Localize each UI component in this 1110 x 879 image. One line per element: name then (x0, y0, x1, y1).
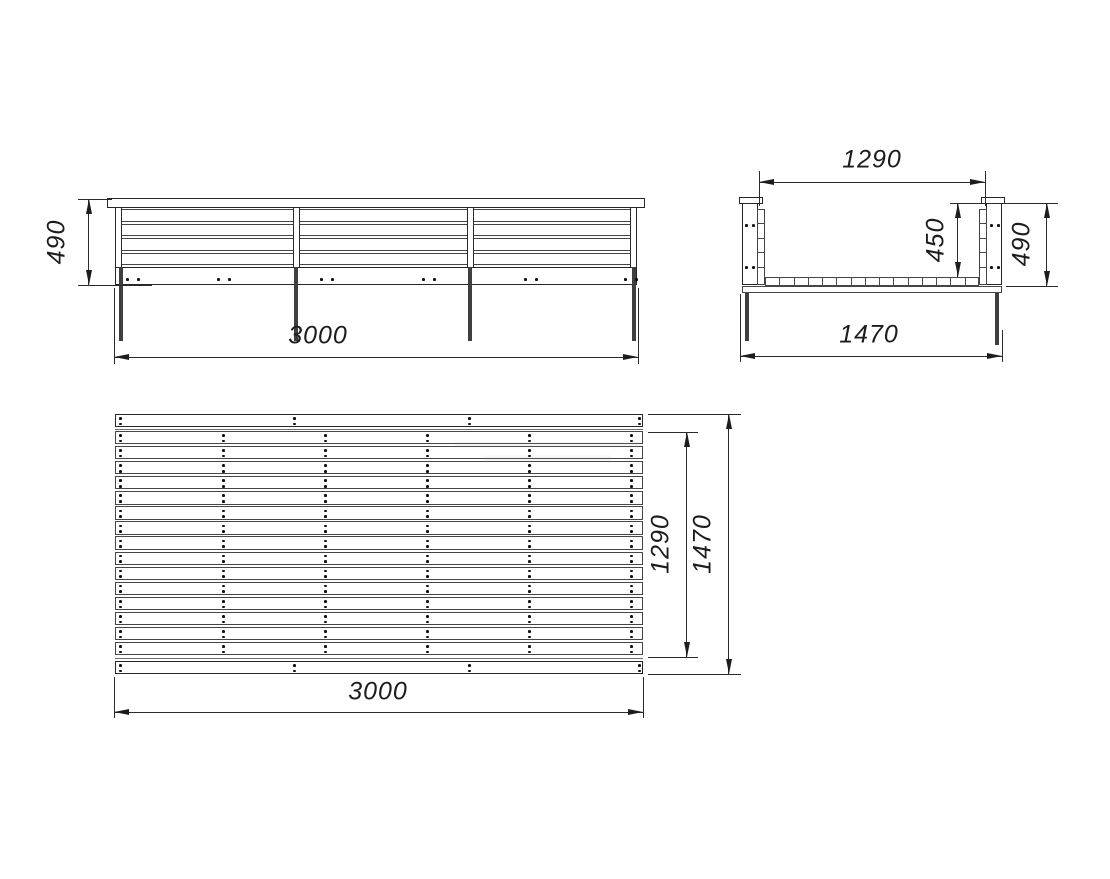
arrow-down-icon (86, 270, 92, 285)
screw-dot (752, 266, 755, 269)
screw-dot (293, 670, 296, 673)
extension-line (78, 285, 152, 286)
dimension-line (114, 712, 643, 713)
floor-slat-tick (908, 278, 909, 285)
screw-dot (630, 525, 633, 528)
front-post (115, 208, 122, 267)
screw-dot (426, 600, 429, 603)
screw-dot (528, 600, 531, 603)
screw-dot (426, 590, 429, 593)
plan-floor-slat (115, 627, 643, 640)
screw-dot (324, 621, 327, 624)
screw-dot (293, 664, 296, 667)
side-right-slat-ends (979, 209, 987, 285)
arrow-down-icon (1044, 271, 1050, 286)
screw-dot (426, 555, 429, 558)
screw-dot (222, 590, 225, 593)
extension-line (648, 657, 698, 658)
screw-dot (426, 525, 429, 528)
extension-line (740, 294, 741, 362)
front-leg (119, 267, 123, 341)
screw-dot (222, 434, 225, 437)
screw-dot (222, 560, 225, 563)
screw-dot (324, 651, 327, 654)
plan-floor-slat (115, 642, 643, 655)
screw-dot (222, 636, 225, 639)
side-floor-platform (765, 277, 979, 286)
screw-dot (119, 606, 122, 609)
screw-dot (222, 606, 225, 609)
dim-value: 1290 (842, 146, 902, 175)
screw-dot (630, 470, 633, 473)
screw-dot (426, 575, 429, 578)
slat-end-tick (758, 238, 765, 239)
plan-bottom-rail-edge (115, 658, 643, 659)
screw-dot (222, 500, 225, 503)
screw-dot (119, 630, 122, 633)
screw-dot (222, 600, 225, 603)
screw-dot (528, 485, 531, 488)
screw-dot (222, 575, 225, 578)
slat-end-tick (980, 223, 987, 224)
screw-dot (222, 464, 225, 467)
screw-dot (119, 600, 122, 603)
screw-dot (426, 560, 429, 563)
screw-dot (630, 600, 633, 603)
screw-dot (638, 423, 641, 426)
arrow-left-icon (740, 353, 755, 359)
front-top-cap (107, 198, 645, 208)
screw-dot (426, 479, 429, 482)
screw-dot (324, 540, 327, 543)
screw-dot (119, 670, 122, 673)
screw-dot (119, 651, 122, 654)
screw-dot (222, 621, 225, 624)
arrow-right-icon (970, 179, 985, 185)
extension-line (648, 432, 698, 433)
screw-dot (324, 600, 327, 603)
screw-dot (119, 470, 122, 473)
dim-value: 3000 (288, 322, 348, 351)
screw-dot (324, 530, 327, 533)
screw-dot (119, 417, 122, 420)
screw-dot (528, 510, 531, 513)
screw-dot (528, 621, 531, 624)
screw-dot (324, 525, 327, 528)
screw-dot (535, 278, 538, 281)
screw-dot (119, 434, 122, 437)
screw-dot (990, 224, 993, 227)
screw-dot (119, 525, 122, 528)
screw-dot (468, 423, 471, 426)
screw-dot (228, 278, 231, 281)
plan-bottom-rail (115, 661, 643, 674)
screw-dot (324, 515, 327, 518)
screw-dot (426, 515, 429, 518)
screw-dot (990, 266, 993, 269)
screw-dot (222, 470, 225, 473)
screw-dot (630, 590, 633, 593)
screw-dot (624, 278, 627, 281)
floor-slat-tick (779, 278, 780, 285)
floor-slat-tick (865, 278, 866, 285)
screw-dot (528, 615, 531, 618)
screw-dot (119, 590, 122, 593)
floor-slat-tick (893, 278, 894, 285)
extension-line (1002, 330, 1003, 362)
screw-dot (524, 278, 527, 281)
front-post (630, 208, 637, 267)
screw-dot (222, 485, 225, 488)
extension-line (114, 288, 115, 364)
screw-dot (293, 417, 296, 420)
screw-dot (638, 670, 641, 673)
screw-dot (528, 470, 531, 473)
plan-floor-slat (115, 446, 643, 459)
screw-dot (119, 645, 122, 648)
screw-dot (997, 266, 1000, 269)
screw-dot (528, 525, 531, 528)
extension-line (643, 677, 644, 718)
screw-dot (528, 560, 531, 563)
screw-dot (222, 540, 225, 543)
screw-dot (426, 606, 429, 609)
floor-slat-tick (922, 278, 923, 285)
screw-dot (468, 670, 471, 673)
screw-dot (324, 636, 327, 639)
screw-dot (630, 555, 633, 558)
arrow-up-icon (955, 203, 961, 218)
plan-floor-slat (115, 582, 643, 595)
plan-floor-slat (115, 521, 643, 534)
screw-dot (324, 590, 327, 593)
screw-dot (528, 500, 531, 503)
screw-dot (426, 651, 429, 654)
screw-dot (324, 575, 327, 578)
screw-dot (752, 224, 755, 227)
screw-dot (426, 540, 429, 543)
screw-dot (630, 651, 633, 654)
arrow-right-icon (628, 709, 643, 715)
screw-dot (528, 630, 531, 633)
screw-dot (320, 278, 323, 281)
extension-line (638, 288, 639, 364)
extension-line (950, 203, 1058, 204)
screw-dot (630, 510, 633, 513)
screw-dot (433, 278, 436, 281)
front-wall-slat (115, 253, 637, 266)
screw-dot (324, 449, 327, 452)
screw-dot (630, 479, 633, 482)
plan-floor-slat (115, 612, 643, 625)
front-post (467, 208, 474, 267)
plan-top-rail-edge (115, 429, 643, 430)
arrow-down-icon (684, 642, 690, 657)
arrow-up-icon (1044, 203, 1050, 218)
floor-slat-tick (936, 278, 937, 285)
screw-dot (630, 621, 633, 624)
screw-dot (468, 664, 471, 667)
screw-dot (222, 530, 225, 533)
screw-dot (222, 645, 225, 648)
screw-dot (119, 555, 122, 558)
screw-dot (324, 500, 327, 503)
plan-floor-slat (115, 597, 643, 610)
side-left-post (742, 203, 758, 285)
plan-floor-slat (115, 536, 643, 549)
screw-dot (324, 560, 327, 563)
screw-dot (324, 645, 327, 648)
slat-end-tick (758, 223, 765, 224)
side-right-leg (995, 293, 999, 345)
screw-dot (528, 575, 531, 578)
screw-dot (528, 479, 531, 482)
screw-dot (426, 645, 429, 648)
screw-dot (222, 555, 225, 558)
screw-dot (426, 470, 429, 473)
screw-dot (119, 464, 122, 467)
screw-dot (324, 606, 327, 609)
floor-slat-tick (794, 278, 795, 285)
screw-dot (119, 510, 122, 513)
screw-dot (119, 560, 122, 563)
screw-dot (331, 278, 334, 281)
screw-dot (324, 479, 327, 482)
floor-slat-tick (879, 278, 880, 285)
screw-dot (630, 575, 633, 578)
screw-dot (638, 417, 641, 420)
screw-dot (630, 434, 633, 437)
front-post (293, 208, 300, 267)
screw-dot (426, 485, 429, 488)
screw-dot (528, 494, 531, 497)
screw-dot (324, 510, 327, 513)
screw-dot (745, 224, 748, 227)
screw-dot (426, 464, 429, 467)
screw-dot (426, 615, 429, 618)
screw-dot (630, 545, 633, 548)
extension-line (985, 171, 986, 206)
floor-slat-tick (851, 278, 852, 285)
arrow-left-icon (759, 179, 774, 185)
drawing-canvas: 490 3000 129 (0, 0, 1110, 879)
plan-floor-slat (115, 476, 643, 489)
screw-dot (630, 494, 633, 497)
screw-dot (630, 464, 633, 467)
slat-end-tick (758, 267, 765, 268)
front-bottom-board (115, 267, 637, 285)
floor-slat-tick (836, 278, 837, 285)
screw-dot (630, 540, 633, 543)
screw-dot (222, 545, 225, 548)
dim-value: 490 (43, 220, 72, 265)
slat-end-tick (980, 267, 987, 268)
floor-slat-tick (808, 278, 809, 285)
screw-dot (119, 423, 122, 426)
side-left-leg (745, 293, 749, 341)
screw-dot (630, 615, 633, 618)
front-wall-slat (115, 238, 637, 251)
plan-floor-slat (115, 431, 643, 444)
floor-slat-tick (965, 278, 966, 285)
screw-dot (528, 464, 531, 467)
screw-dot (528, 449, 531, 452)
screw-dot (324, 630, 327, 633)
screw-dot (528, 645, 531, 648)
extension-line (759, 171, 760, 206)
screw-dot (324, 545, 327, 548)
screw-dot (528, 515, 531, 518)
screw-dot (119, 500, 122, 503)
plan-floor-slat (115, 552, 643, 565)
screw-dot (630, 636, 633, 639)
screw-dot (119, 636, 122, 639)
screw-dot (426, 449, 429, 452)
dimension-line (740, 356, 1002, 357)
front-wall-slat (115, 209, 637, 222)
screw-dot (222, 515, 225, 518)
screw-dot (528, 540, 531, 543)
screw-dot (468, 417, 471, 420)
slat-end-tick (758, 252, 765, 253)
screw-dot (630, 645, 633, 648)
screw-dot (528, 606, 531, 609)
screw-dot (630, 560, 633, 563)
screw-dot (426, 510, 429, 513)
side-bottom-band (742, 286, 1002, 293)
screw-dot (222, 525, 225, 528)
screw-dot (222, 630, 225, 633)
screw-dot (630, 449, 633, 452)
dimension-line (114, 357, 638, 358)
front-wall-slat (115, 224, 637, 237)
plan-floor-slat (115, 491, 643, 504)
screw-dot (324, 464, 327, 467)
screw-dot (119, 545, 122, 548)
arrow-right-icon (623, 354, 638, 360)
plan-floor-slat (115, 567, 643, 580)
screw-dot (997, 224, 1000, 227)
screw-dot (222, 615, 225, 618)
screw-dot (222, 494, 225, 497)
screw-dot (324, 555, 327, 558)
screw-dot (137, 278, 140, 281)
dim-value: 3000 (348, 678, 408, 707)
screw-dot (119, 575, 122, 578)
screw-dot (126, 278, 129, 281)
screw-dot (119, 621, 122, 624)
dimension-line (686, 432, 687, 657)
dim-value: 1470 (689, 514, 718, 574)
screw-dot (426, 494, 429, 497)
screw-dot (324, 494, 327, 497)
screw-dot (528, 651, 531, 654)
screw-dot (630, 630, 633, 633)
screw-dot (528, 636, 531, 639)
screw-dot (324, 434, 327, 437)
screw-dot (217, 278, 220, 281)
screw-dot (630, 530, 633, 533)
screw-dot (630, 606, 633, 609)
screw-dot (324, 470, 327, 473)
extension-line (78, 199, 112, 200)
side-right-post (986, 203, 1002, 285)
extension-line (648, 674, 741, 675)
floor-slat-tick (950, 278, 951, 285)
screw-dot (528, 590, 531, 593)
screw-dot (426, 621, 429, 624)
screw-dot (528, 530, 531, 533)
arrow-up-icon (684, 432, 690, 447)
screw-dot (528, 434, 531, 437)
front-leg (468, 267, 472, 341)
arrow-down-icon (726, 659, 732, 674)
arrow-left-icon (114, 709, 129, 715)
screw-dot (745, 266, 748, 269)
arrow-up-icon (726, 414, 732, 429)
plan-top-rail (115, 414, 643, 427)
arrow-up-icon (86, 199, 92, 214)
slat-end-tick (980, 252, 987, 253)
screw-dot (119, 664, 122, 667)
screw-dot (119, 479, 122, 482)
screw-dot (528, 555, 531, 558)
screw-dot (635, 278, 638, 281)
plan-floor-slat (115, 506, 643, 519)
dim-value: 1470 (839, 321, 899, 350)
screw-dot (222, 479, 225, 482)
screw-dot (119, 515, 122, 518)
screw-dot (119, 494, 122, 497)
plan-floor-slat (115, 461, 643, 474)
screw-dot (630, 515, 633, 518)
dim-value: 490 (1008, 222, 1037, 267)
screw-dot (426, 636, 429, 639)
dim-value: 450 (922, 218, 951, 263)
screw-dot (426, 630, 429, 633)
screw-dot (222, 651, 225, 654)
side-left-slat-ends (757, 209, 765, 285)
screw-dot (426, 545, 429, 548)
screw-dot (426, 434, 429, 437)
arrow-down-icon (955, 262, 961, 277)
dimension-line (759, 182, 985, 183)
screw-dot (426, 530, 429, 533)
slat-end-tick (980, 238, 987, 239)
screw-dot (119, 485, 122, 488)
screw-dot (426, 500, 429, 503)
extension-line (1006, 286, 1058, 287)
screw-dot (528, 545, 531, 548)
screw-dot (222, 510, 225, 513)
floor-slat-tick (822, 278, 823, 285)
dimension-line (728, 414, 729, 674)
screw-dot (119, 530, 122, 533)
dim-value: 1290 (647, 514, 676, 574)
screw-dot (119, 540, 122, 543)
screw-dot (422, 278, 425, 281)
screw-dot (293, 423, 296, 426)
screw-dot (119, 449, 122, 452)
screw-dot (630, 485, 633, 488)
arrow-left-icon (114, 354, 129, 360)
screw-dot (638, 664, 641, 667)
screw-dot (630, 500, 633, 503)
screw-dot (324, 485, 327, 488)
arrow-right-icon (987, 353, 1002, 359)
screw-dot (324, 615, 327, 618)
screw-dot (222, 449, 225, 452)
